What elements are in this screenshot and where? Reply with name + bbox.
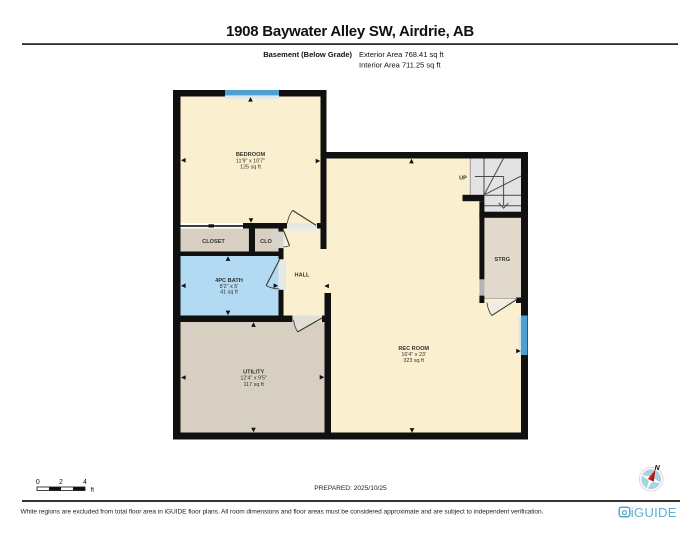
svg-text:PREPARED: 2025/10/25: PREPARED: 2025/10/25	[314, 485, 387, 492]
svg-text:UP: UP	[459, 176, 467, 182]
svg-text:2: 2	[59, 479, 63, 486]
svg-text:Exterior Area 768.41 sq ft: Exterior Area 768.41 sq ft	[359, 50, 445, 59]
svg-text:BEDROOM: BEDROOM	[236, 152, 266, 158]
svg-text:0: 0	[36, 479, 40, 486]
svg-text:ft: ft	[91, 487, 95, 494]
svg-text:323 sq ft: 323 sq ft	[403, 358, 424, 364]
svg-text:CLO: CLO	[260, 239, 272, 245]
svg-text:Basement (Below Grade): Basement (Below Grade)	[263, 50, 352, 59]
svg-text:Interior Area 711.25 sq ft: Interior Area 711.25 sq ft	[359, 60, 441, 69]
svg-text:16'4" x 23': 16'4" x 23'	[401, 352, 426, 358]
svg-text:11'9" x 10'7": 11'9" x 10'7"	[236, 158, 265, 164]
svg-text:117 sq ft: 117 sq ft	[244, 382, 265, 388]
svg-text:4: 4	[83, 479, 87, 486]
svg-text:White regions are excluded fro: White regions are excluded from total fl…	[21, 509, 544, 516]
svg-text:1908 Baywater Alley SW, Airdri: 1908 Baywater Alley SW, Airdrie, AB	[226, 23, 474, 40]
svg-text:125 sq ft: 125 sq ft	[240, 164, 261, 170]
svg-text:41 sq ft: 41 sq ft	[220, 290, 238, 296]
svg-text:REC ROOM: REC ROOM	[398, 346, 429, 352]
svg-text:CLOSET: CLOSET	[202, 239, 225, 245]
svg-text:iGUIDE: iGUIDE	[631, 505, 677, 520]
svg-text:UTILITY: UTILITY	[243, 370, 264, 376]
svg-text:STRG: STRG	[495, 257, 511, 263]
svg-text:12'4" x 9'5": 12'4" x 9'5"	[240, 376, 267, 382]
svg-text:HALL: HALL	[295, 272, 310, 278]
